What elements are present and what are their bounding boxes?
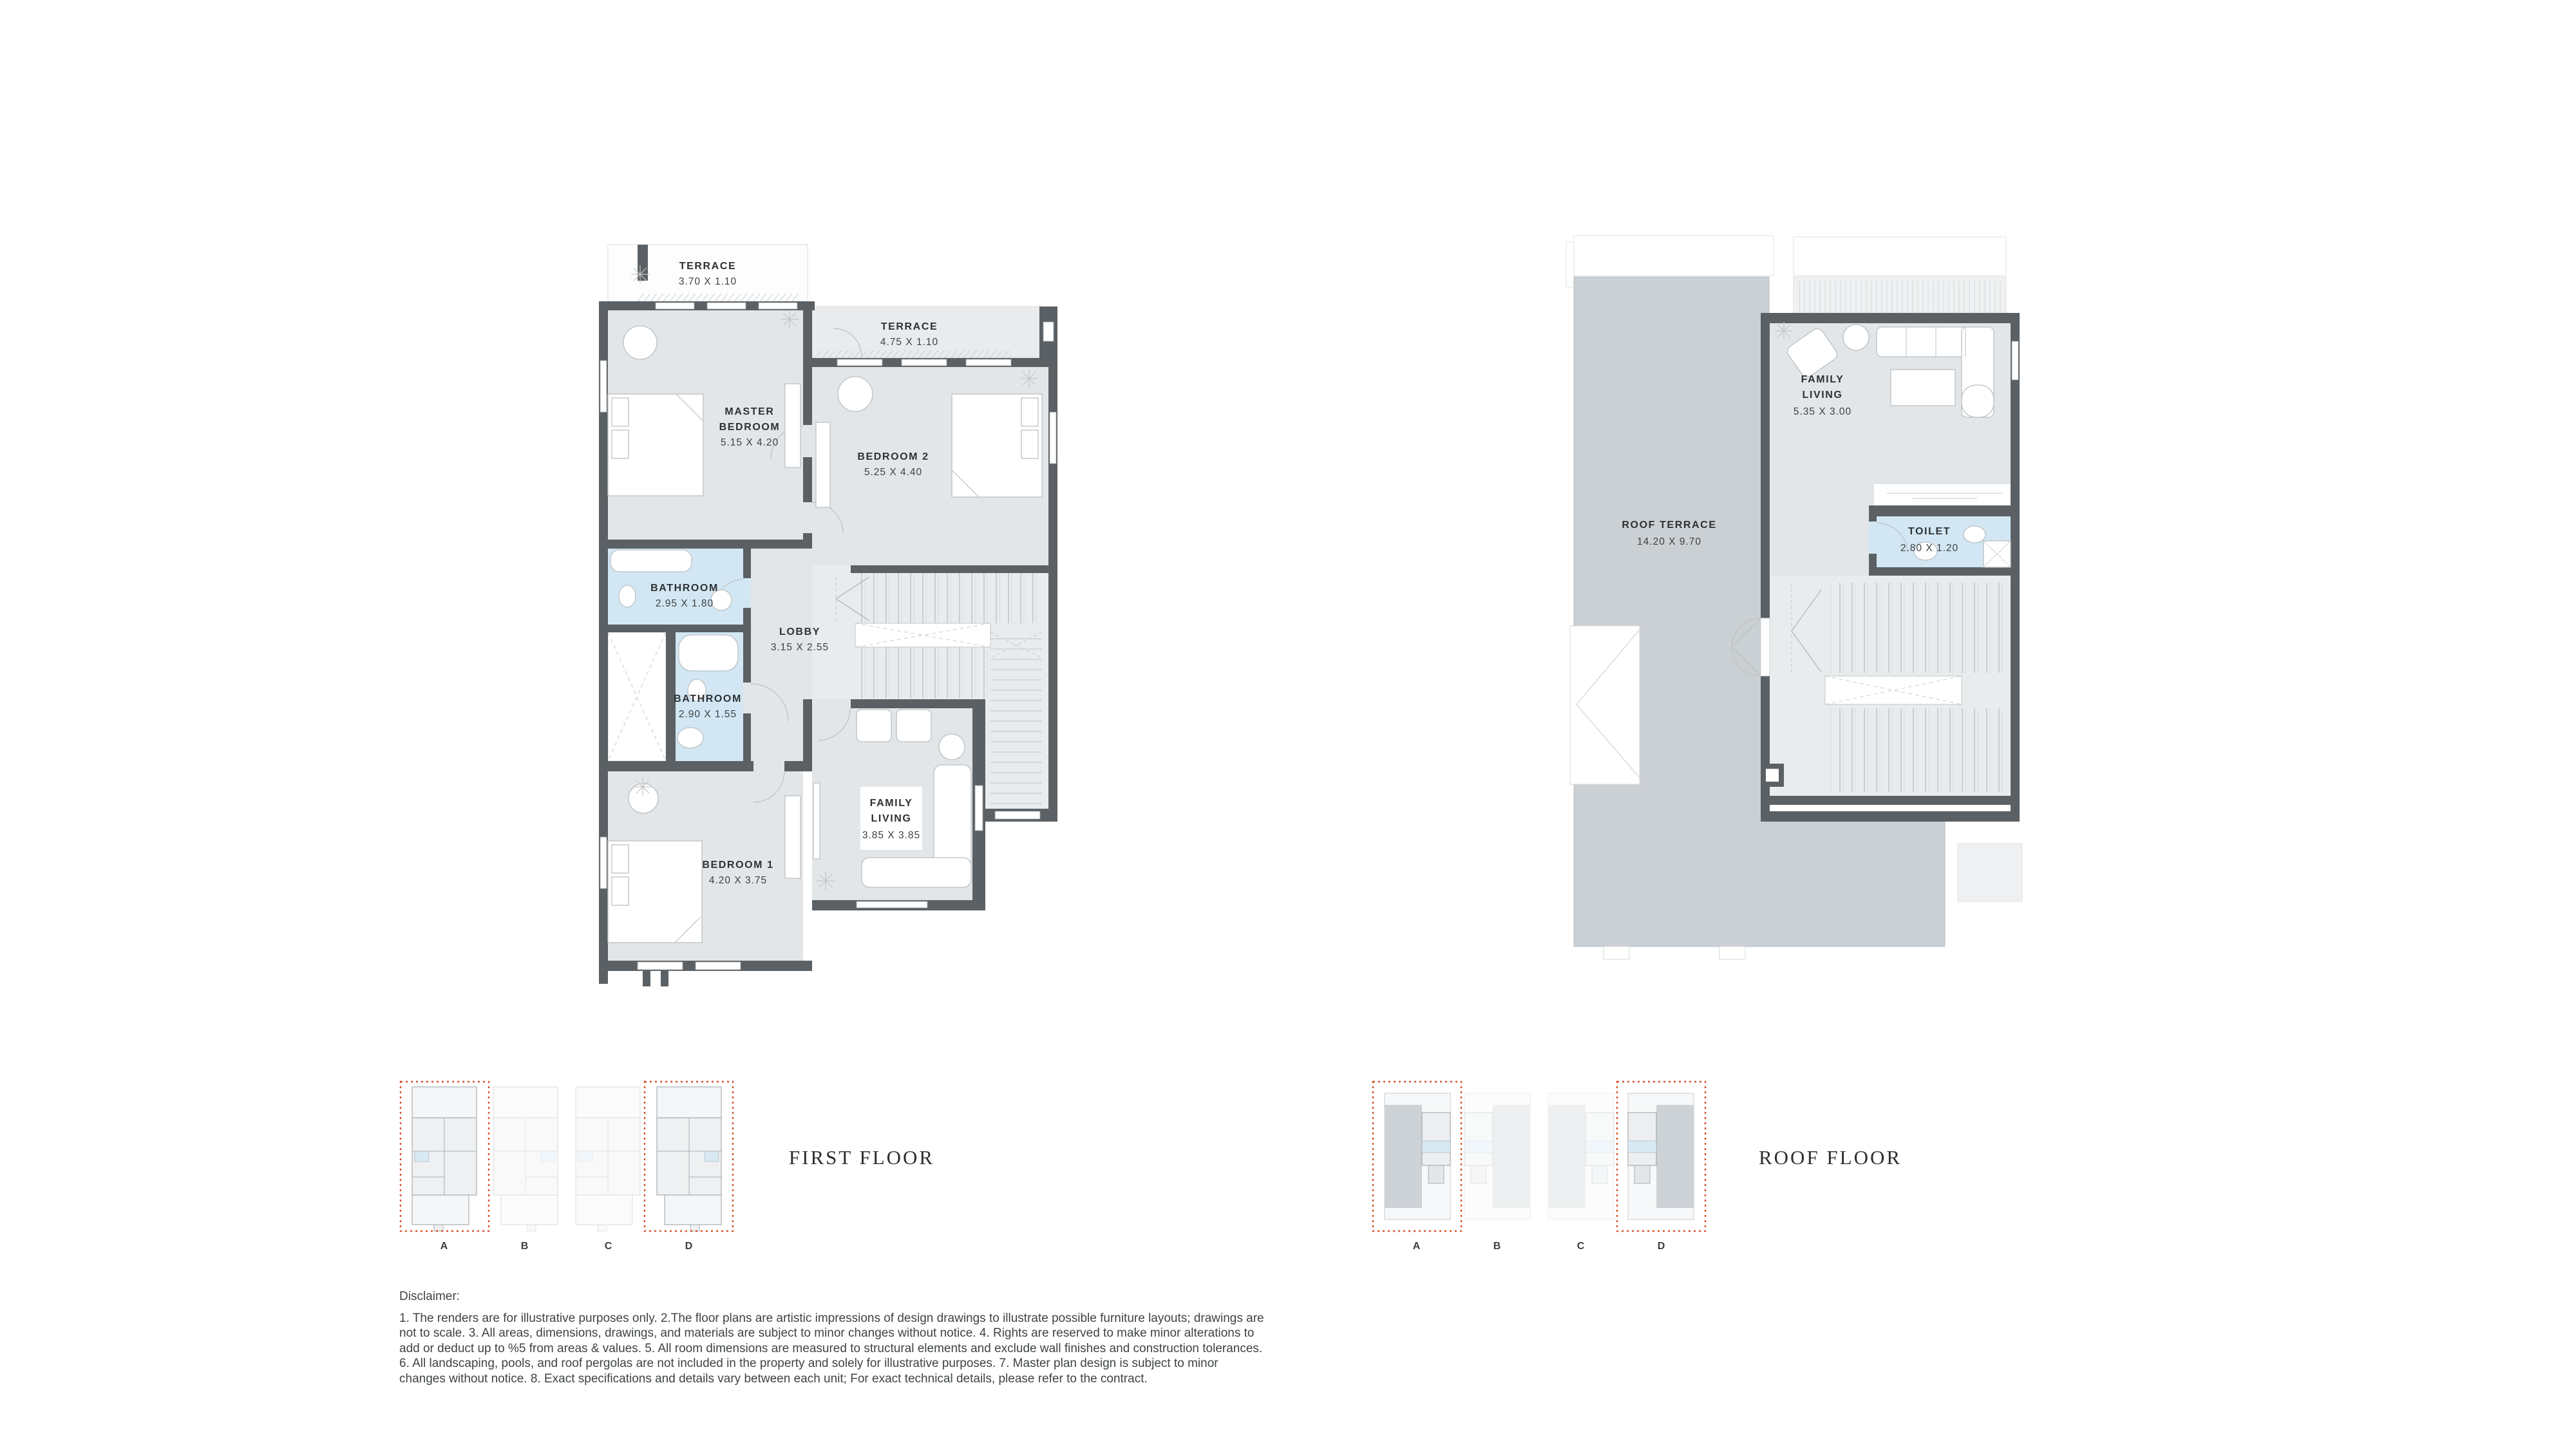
room-label: BATHROOM <box>650 583 719 594</box>
roof-outline-top <box>1574 236 1774 276</box>
room-label: TERRACE <box>679 261 737 272</box>
keyplan-unit-label: B <box>1493 1241 1502 1252</box>
room-label: LIVING <box>1803 390 1843 400</box>
keyplan-unit-c <box>1548 1093 1614 1219</box>
room-dims: 5.35 X 3.00 <box>1794 406 1851 417</box>
first-floor-plan: TERRACE 3.70 X 1.10 TERRACE 4.75 X 1.10 … <box>599 232 1063 992</box>
terrace-2-area <box>812 306 1041 358</box>
keyplan-unit-label: A <box>440 1241 449 1252</box>
room-dims: 4.20 X 3.75 <box>709 875 767 886</box>
roof-passage-floor <box>1770 484 1874 576</box>
floorplan-brochure-page: { "document": { "background": "#ffffff" … <box>0 0 2576 1450</box>
terrace-1-area <box>608 245 808 301</box>
roof-outline-right <box>1794 237 2006 276</box>
roof-outline-stub <box>1566 242 1574 287</box>
keyplan-unit-b <box>493 1087 558 1231</box>
keyplan-unit-label: D <box>685 1241 694 1252</box>
lower-roof-patch <box>1958 843 2022 901</box>
roof-stub-2 <box>1719 946 1745 959</box>
roof-stub-1 <box>1604 946 1629 959</box>
disclaimer: Disclaimer: 1. The renders are for illus… <box>399 1289 1265 1386</box>
room-dims: 2.95 X 1.80 <box>656 598 714 609</box>
room-dims: 3.85 X 3.85 <box>862 830 920 841</box>
room-dims: 2.80 X 1.20 <box>1900 543 1958 554</box>
keyplan-unit-a <box>412 1087 477 1231</box>
keyplan-unit-label: D <box>1658 1241 1666 1252</box>
keyplan-unit-b <box>1464 1093 1530 1219</box>
disclaimer-heading: Disclaimer: <box>399 1289 1265 1304</box>
room-dims: 5.25 X 4.40 <box>864 467 922 478</box>
roof-staircase <box>1770 576 2011 796</box>
room-label: BEDROOM 2 <box>857 451 929 462</box>
room-label: FAMILY <box>1801 374 1844 385</box>
room-label: TERRACE <box>881 321 938 332</box>
keyplan-unit-a <box>1385 1093 1450 1219</box>
room-dims: 14.20 X 9.70 <box>1637 536 1701 547</box>
room-label: BEDROOM <box>719 422 781 433</box>
room-label: BEDROOM 1 <box>702 860 773 871</box>
room-dims: 3.70 X 1.10 <box>679 276 737 287</box>
keyplan-unit-d <box>657 1087 721 1231</box>
room-dims: 5.15 X 4.20 <box>721 437 779 448</box>
room-dims: 3.15 X 2.55 <box>771 642 829 653</box>
room-label: FAMILY <box>870 798 913 809</box>
keyplan-roof-floor: A B C D <box>1359 1050 1719 1262</box>
roof-floor-plan: ROOF TERRACE 14.20 X 9.70 FAMILY LIVING … <box>1565 232 2029 992</box>
room-dims: 4.75 X 1.10 <box>880 337 938 348</box>
disclaimer-body: 1. The renders are for illustrative purp… <box>399 1311 1265 1387</box>
skylight-notch <box>1570 626 1640 784</box>
first-floor-title: FIRST FLOOR <box>726 1146 997 1169</box>
room-label: TOILET <box>1908 526 1951 537</box>
keyplan-unit-label: A <box>1413 1241 1421 1252</box>
room-label: BATHROOM <box>674 693 742 704</box>
keyplan-unit-c <box>576 1087 640 1231</box>
room-label: LOBBY <box>779 626 820 637</box>
keyplan-unit-label: C <box>1577 1241 1586 1252</box>
roof-floor-title: ROOF FLOOR <box>1695 1146 1965 1169</box>
room-label: LIVING <box>871 813 912 824</box>
keyplan-unit-d <box>1628 1093 1694 1219</box>
keyplan-first-floor: A B C D <box>386 1050 747 1262</box>
lobby-floor <box>743 540 812 771</box>
vanity-counter <box>1874 484 2011 505</box>
keyplan-unit-label: B <box>521 1241 529 1252</box>
keyplan-unit-label: C <box>605 1241 613 1252</box>
room-dims: 2.90 X 1.55 <box>679 709 737 720</box>
closet <box>608 632 666 761</box>
room-label: MASTER <box>724 406 774 417</box>
room-label: ROOF TERRACE <box>1622 520 1716 531</box>
